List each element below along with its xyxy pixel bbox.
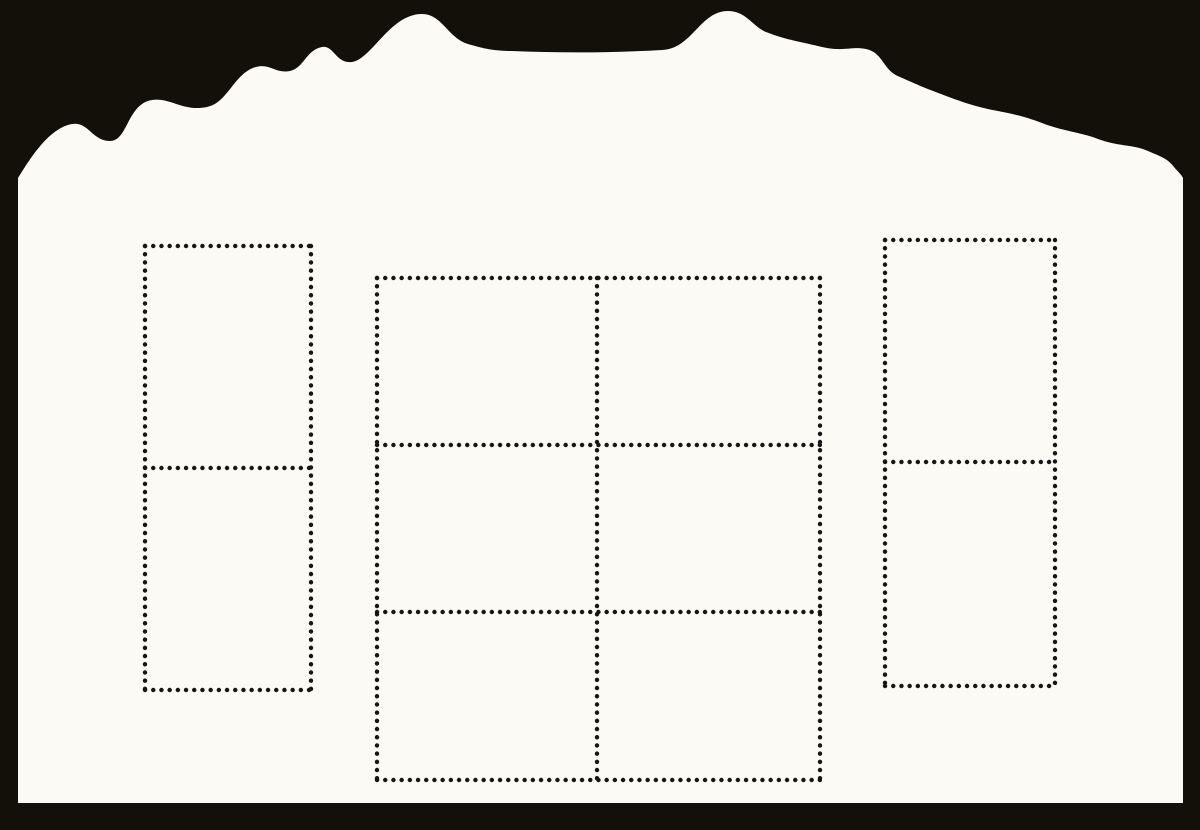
scan-background [0, 0, 1200, 830]
souvenir-sheet [0, 0, 1200, 830]
